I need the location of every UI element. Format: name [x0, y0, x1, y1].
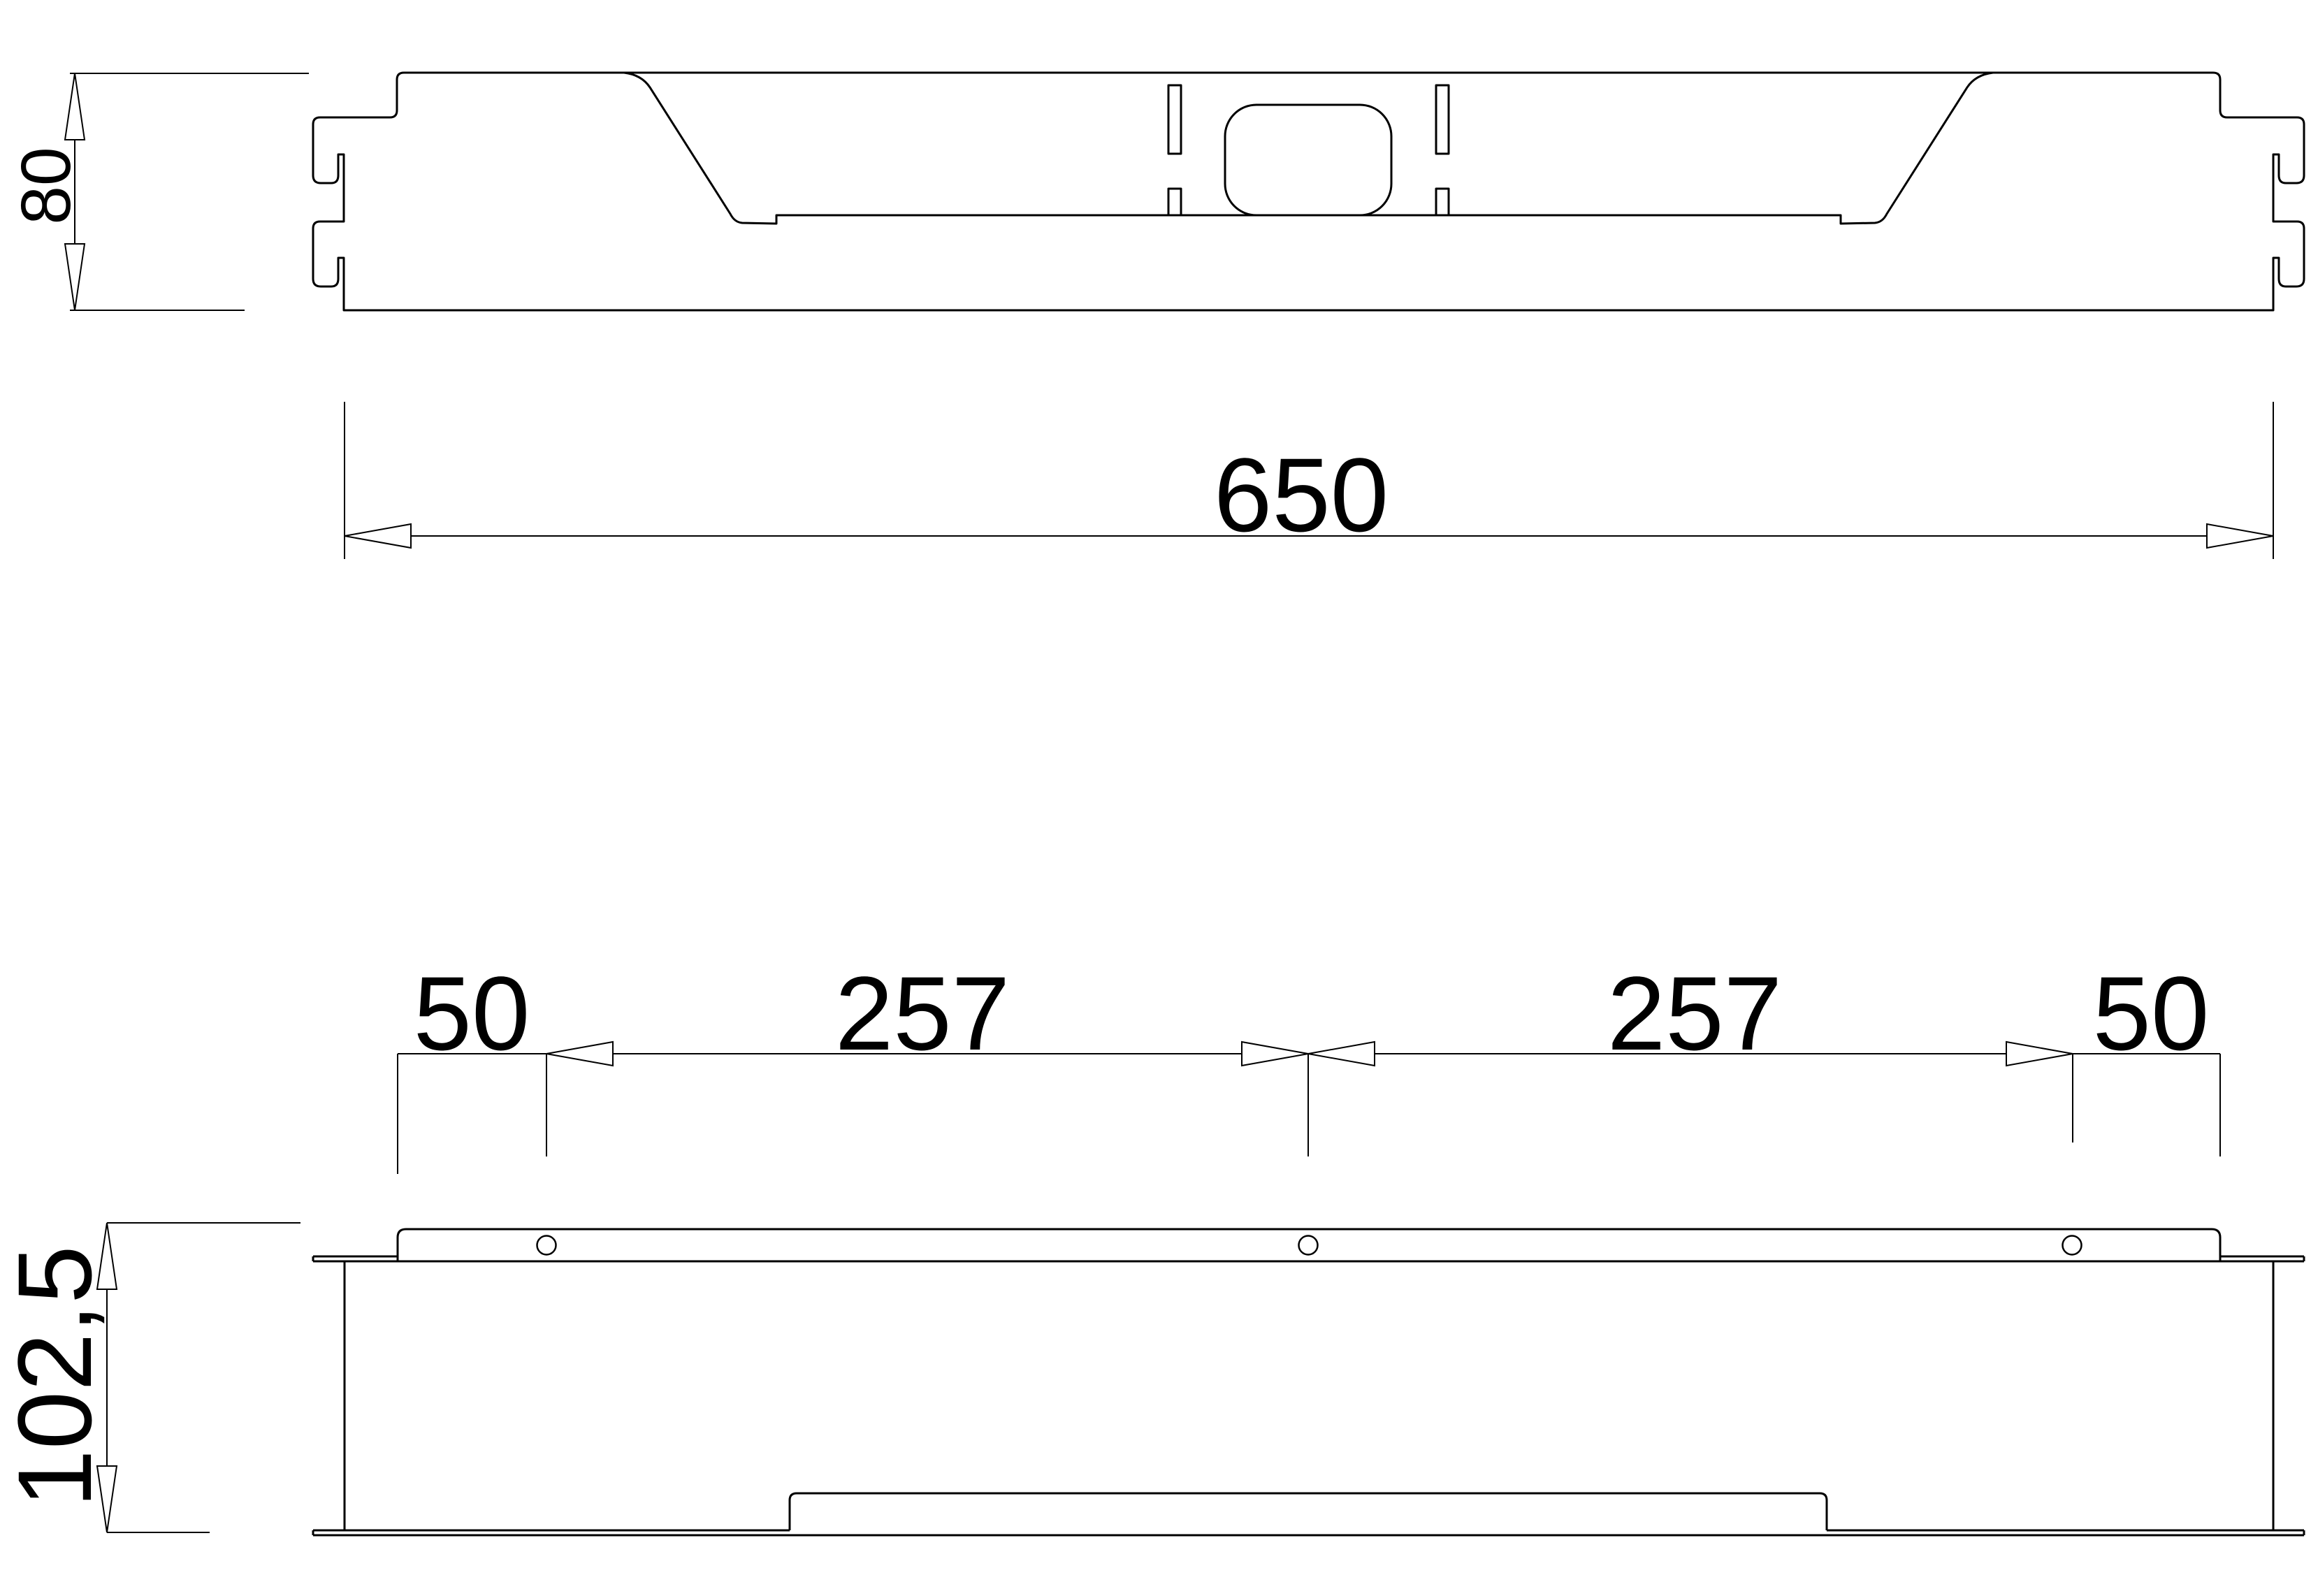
dim-side-pitch-right-text: 257 [1607, 955, 1782, 1072]
front-slot-lower-left [1168, 189, 1181, 215]
front-knockout-rounded-rect [1225, 105, 1391, 215]
dim-side-margin-left-text: 50 [414, 955, 530, 1072]
dim-side-arrow-center-right [1308, 1042, 1375, 1066]
dim-front-height-arrow-down [65, 244, 85, 310]
front-slot-upper-right [1436, 85, 1449, 154]
dim-front-length: 650 [345, 402, 2273, 559]
front-recess-line [624, 73, 1993, 224]
dim-side-pitch-left-text: 257 [835, 955, 1010, 1072]
dim-side-margin-right-text: 50 [2093, 955, 2210, 1072]
side-flange-outline [398, 1229, 2220, 1261]
side-mounting-hole-right [2063, 1236, 2082, 1255]
dim-front-height: 80 [7, 73, 309, 310]
side-view: 50 257 257 50 102,5 [0, 955, 2304, 1535]
side-bottom-channel [790, 1493, 1827, 1530]
dim-front-length-arrow-right [2207, 524, 2273, 548]
dim-side-arrow-hole-left [546, 1042, 613, 1066]
front-slot-upper-left [1168, 85, 1181, 154]
dim-side-arrow-center-left [1242, 1042, 1308, 1066]
dim-front-height-text: 80 [7, 147, 85, 224]
dim-front-length-arrow-left [345, 524, 411, 548]
front-slot-lower-right [1436, 189, 1449, 215]
dim-front-length-text: 650 [1214, 436, 1389, 553]
dim-side-height-text: 102,5 [0, 1245, 113, 1507]
side-mounting-hole-center [1299, 1236, 1318, 1255]
side-mounting-hole-left [537, 1236, 556, 1255]
dim-side-arrow-hole-right [2006, 1042, 2073, 1066]
dim-front-height-arrow-up [65, 73, 85, 140]
front-view: 80 650 [7, 73, 2304, 559]
technical-drawing-canvas: 80 650 [0, 0, 2311, 1596]
front-part-outline [313, 73, 2304, 310]
dim-side-height: 102,5 [0, 1223, 300, 1532]
dim-side-row: 50 257 257 50 [398, 955, 2220, 1174]
